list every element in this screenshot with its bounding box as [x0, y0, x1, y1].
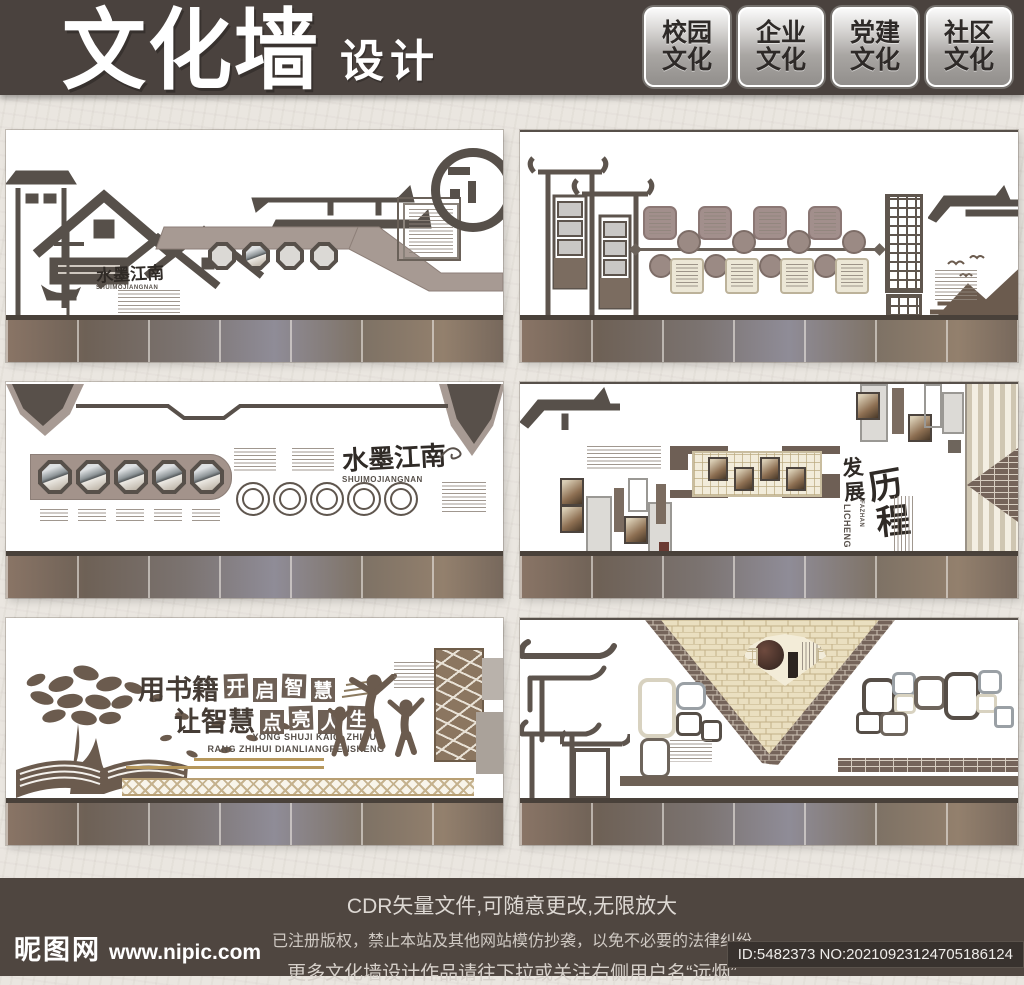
scroll-band [30, 454, 232, 500]
panel2-wall [520, 130, 1018, 320]
panel-slab-dark [892, 388, 904, 434]
badge-campus-culture: 校园 文化 [644, 7, 730, 87]
panel-shuimo-circles: 水墨江南 SHUIMOJIANGNAN [6, 382, 503, 598]
fan-ink-bottle [788, 652, 798, 678]
panel5-floor [6, 798, 503, 845]
brick-strip [838, 758, 1018, 772]
footer-line-1: CDR矢量文件,可随意更改,无限放大 [347, 890, 677, 920]
panel-slab-dark [656, 484, 666, 524]
photo-frame [708, 457, 728, 481]
gate-column [560, 728, 630, 798]
history-timeline [635, 204, 885, 296]
panel4-wall: 发 展 历 程 FAZHAN LICHENG [520, 382, 1018, 556]
placeholder-text [587, 446, 661, 470]
wall-frame [914, 676, 946, 710]
panel6-floor [520, 798, 1018, 845]
title-main: 文化墙 [62, 0, 320, 107]
octagon-photo [38, 460, 72, 494]
octagon-frame [276, 242, 304, 270]
category-badges: 校园 文化 企业 文化 党建 文化 社区 文化 [644, 7, 1012, 87]
roof-eave-silhouette [928, 184, 1018, 224]
timeline-card-top [643, 206, 677, 240]
panel-slab-dark [614, 488, 624, 532]
timeline-card-bottom [835, 258, 869, 294]
footer-line-2: 已注册版权，禁止本站及其他网站模仿抄袭，以免不必要的法律纠纷 [272, 927, 752, 951]
panel3-floor [6, 551, 503, 598]
vertical-placeholder-text [894, 496, 914, 552]
photo-caption [78, 509, 106, 521]
footer-line-3: 更多文化墙设计作品请往下拉或关注右侧用户名“远烟” [287, 958, 737, 985]
panel-slab [942, 392, 964, 434]
timeline-node [787, 230, 811, 254]
calligraphy-title: 水墨江南 [95, 258, 164, 287]
timeline-node [842, 230, 866, 254]
panel5-wall: 用书籍 开 启 智 慧 让智慧 点 亮 人 生 YONG SHUJI KAIQI… [6, 618, 503, 803]
fan-ink-stone [754, 640, 784, 670]
timeline-card-top [808, 206, 842, 240]
photo-caption [154, 509, 182, 521]
pattern-band [122, 778, 474, 796]
lattice-display-band [692, 451, 822, 497]
placeholder-text [118, 290, 180, 302]
panel-timeline [520, 130, 1018, 362]
timeline-card-top [753, 206, 787, 240]
photo-caption [116, 509, 144, 521]
placeholder-text [394, 662, 436, 690]
photo-caption [192, 509, 220, 521]
placeholder-text [292, 448, 334, 472]
placeholder-text [234, 448, 276, 472]
photo-frame [856, 392, 880, 420]
roof-eave-silhouette [520, 386, 620, 430]
wall-frame [701, 720, 722, 742]
ring-ornament [273, 482, 307, 516]
badge-party-culture: 党建 文化 [832, 7, 918, 87]
lattice-screen [885, 194, 923, 293]
octagon-frame [310, 242, 338, 270]
panel4-floor [520, 551, 1018, 598]
octagon-photo [76, 460, 110, 494]
brown-band [620, 776, 1018, 786]
panel1-title-block: 水墨江南 SHUIMOJIANGNAN [96, 260, 164, 291]
panel-slab-outline [924, 384, 942, 428]
photo-frame [760, 457, 780, 481]
wall-frame [994, 706, 1014, 728]
gray-step-block [476, 712, 503, 774]
timeline-card-bottom [670, 258, 704, 294]
photo-caption [40, 509, 68, 521]
octagon-photo [152, 460, 186, 494]
wall-frame [638, 678, 676, 738]
timeline-end-dot [873, 243, 886, 256]
timeline-node [677, 230, 701, 254]
octagon-photo [190, 460, 224, 494]
timeline-node [732, 230, 756, 254]
gold-rule [126, 766, 324, 769]
wall-frame [880, 712, 908, 736]
header-bar: 文化墙 设计 校园 文化 企业 文化 党建 文化 社区 文化 [0, 0, 1024, 95]
octagon-photo [114, 460, 148, 494]
site-name: 昵图网 [14, 928, 101, 967]
title-sub: 设计 [340, 25, 440, 89]
zigzag-trim-line [76, 398, 448, 424]
ring-ornament [384, 482, 418, 516]
panel3-wall: 水墨江南 SHUIMOJIANGNAN [6, 382, 503, 556]
panel1-floor [6, 315, 503, 362]
panel-slab [586, 496, 612, 556]
wall-frame [892, 672, 916, 696]
timeline-card-top [698, 206, 732, 240]
panel1-wall: 水墨江南 SHUIMOJIANGNAN [6, 130, 503, 320]
wall-frame [640, 738, 670, 778]
wall-frame [894, 694, 916, 714]
timeline-card-bottom [780, 258, 814, 294]
swirl-ornament [438, 442, 464, 462]
wall-frame [676, 712, 702, 736]
nipic-logo: 昵图网 www.nipic.com [14, 928, 261, 967]
placeholder-text [442, 482, 486, 514]
gold-rule [194, 758, 324, 761]
wall-frame [978, 670, 1002, 694]
panel2-floor [520, 315, 1018, 362]
ring-ornament [236, 482, 270, 516]
wall-frame [944, 672, 980, 720]
gray-step-block [482, 658, 503, 700]
image-id-box: ID:5482373 NO:20210923124705186124 [727, 941, 1024, 968]
poster-root: { "palette": { "header_bg": "#4a423e", "… [0, 0, 1024, 976]
poster-title: 文化墙 设计 [62, 0, 440, 91]
photo-frame [786, 467, 806, 491]
ring-ornament [310, 482, 344, 516]
panel6-wall [520, 618, 1018, 803]
photo-frame [624, 516, 648, 544]
footer-bar: CDR矢量文件,可随意更改,无限放大 已注册版权，禁止本站及其他网站模仿抄袭，以… [0, 878, 1024, 976]
center-display-shelf [670, 446, 840, 498]
dark-square-accent [948, 440, 961, 453]
panel-shuimo-village: 水墨江南 SHUIMOJIANGNAN [6, 130, 503, 362]
photo-frame [560, 505, 584, 533]
placeholder-text [670, 740, 712, 762]
panel-slab-outline [628, 478, 648, 512]
panel3-title-block: 水墨江南 SHUIMOJIANGNAN [342, 438, 446, 484]
panel-development-history: 发 展 历 程 FAZHAN LICHENG [520, 382, 1018, 598]
ring-ornament [347, 482, 381, 516]
photo-frame [734, 467, 754, 491]
placeholder-text [935, 270, 977, 300]
badge-enterprise-culture: 企业 文化 [738, 7, 824, 87]
calligraphy-title: 水墨江南 [341, 435, 447, 477]
wall-frame [676, 682, 706, 710]
panel-brick-fan [520, 618, 1018, 845]
badge-community-culture: 社区 文化 [926, 7, 1012, 87]
photo-frame [560, 478, 584, 506]
timeline-card-bottom [725, 258, 759, 294]
wall-frame [856, 712, 882, 734]
panel-book-wisdom: 用书籍 开 启 智 慧 让智慧 点 亮 人 生 YONG SHUJI KAIQI… [6, 618, 503, 845]
site-url: www.nipic.com [109, 941, 261, 965]
wall-frame [862, 678, 896, 716]
